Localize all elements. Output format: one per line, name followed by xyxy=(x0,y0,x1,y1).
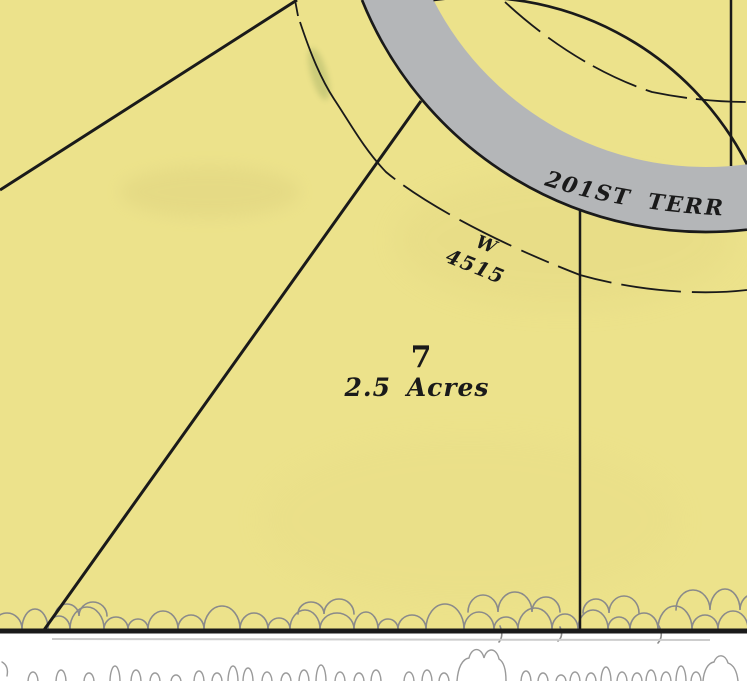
lot-number-label: 7 xyxy=(411,340,432,375)
plat-map-drawing: 201ST TERRACE W 4515 7 2.5 Acres xyxy=(0,0,747,681)
plat-map: 201ST TERRACE W 4515 7 2.5 Acres xyxy=(0,0,747,681)
lot-area-label: 2.5 Acres xyxy=(344,373,490,402)
boundary-shadow-line xyxy=(52,639,710,640)
